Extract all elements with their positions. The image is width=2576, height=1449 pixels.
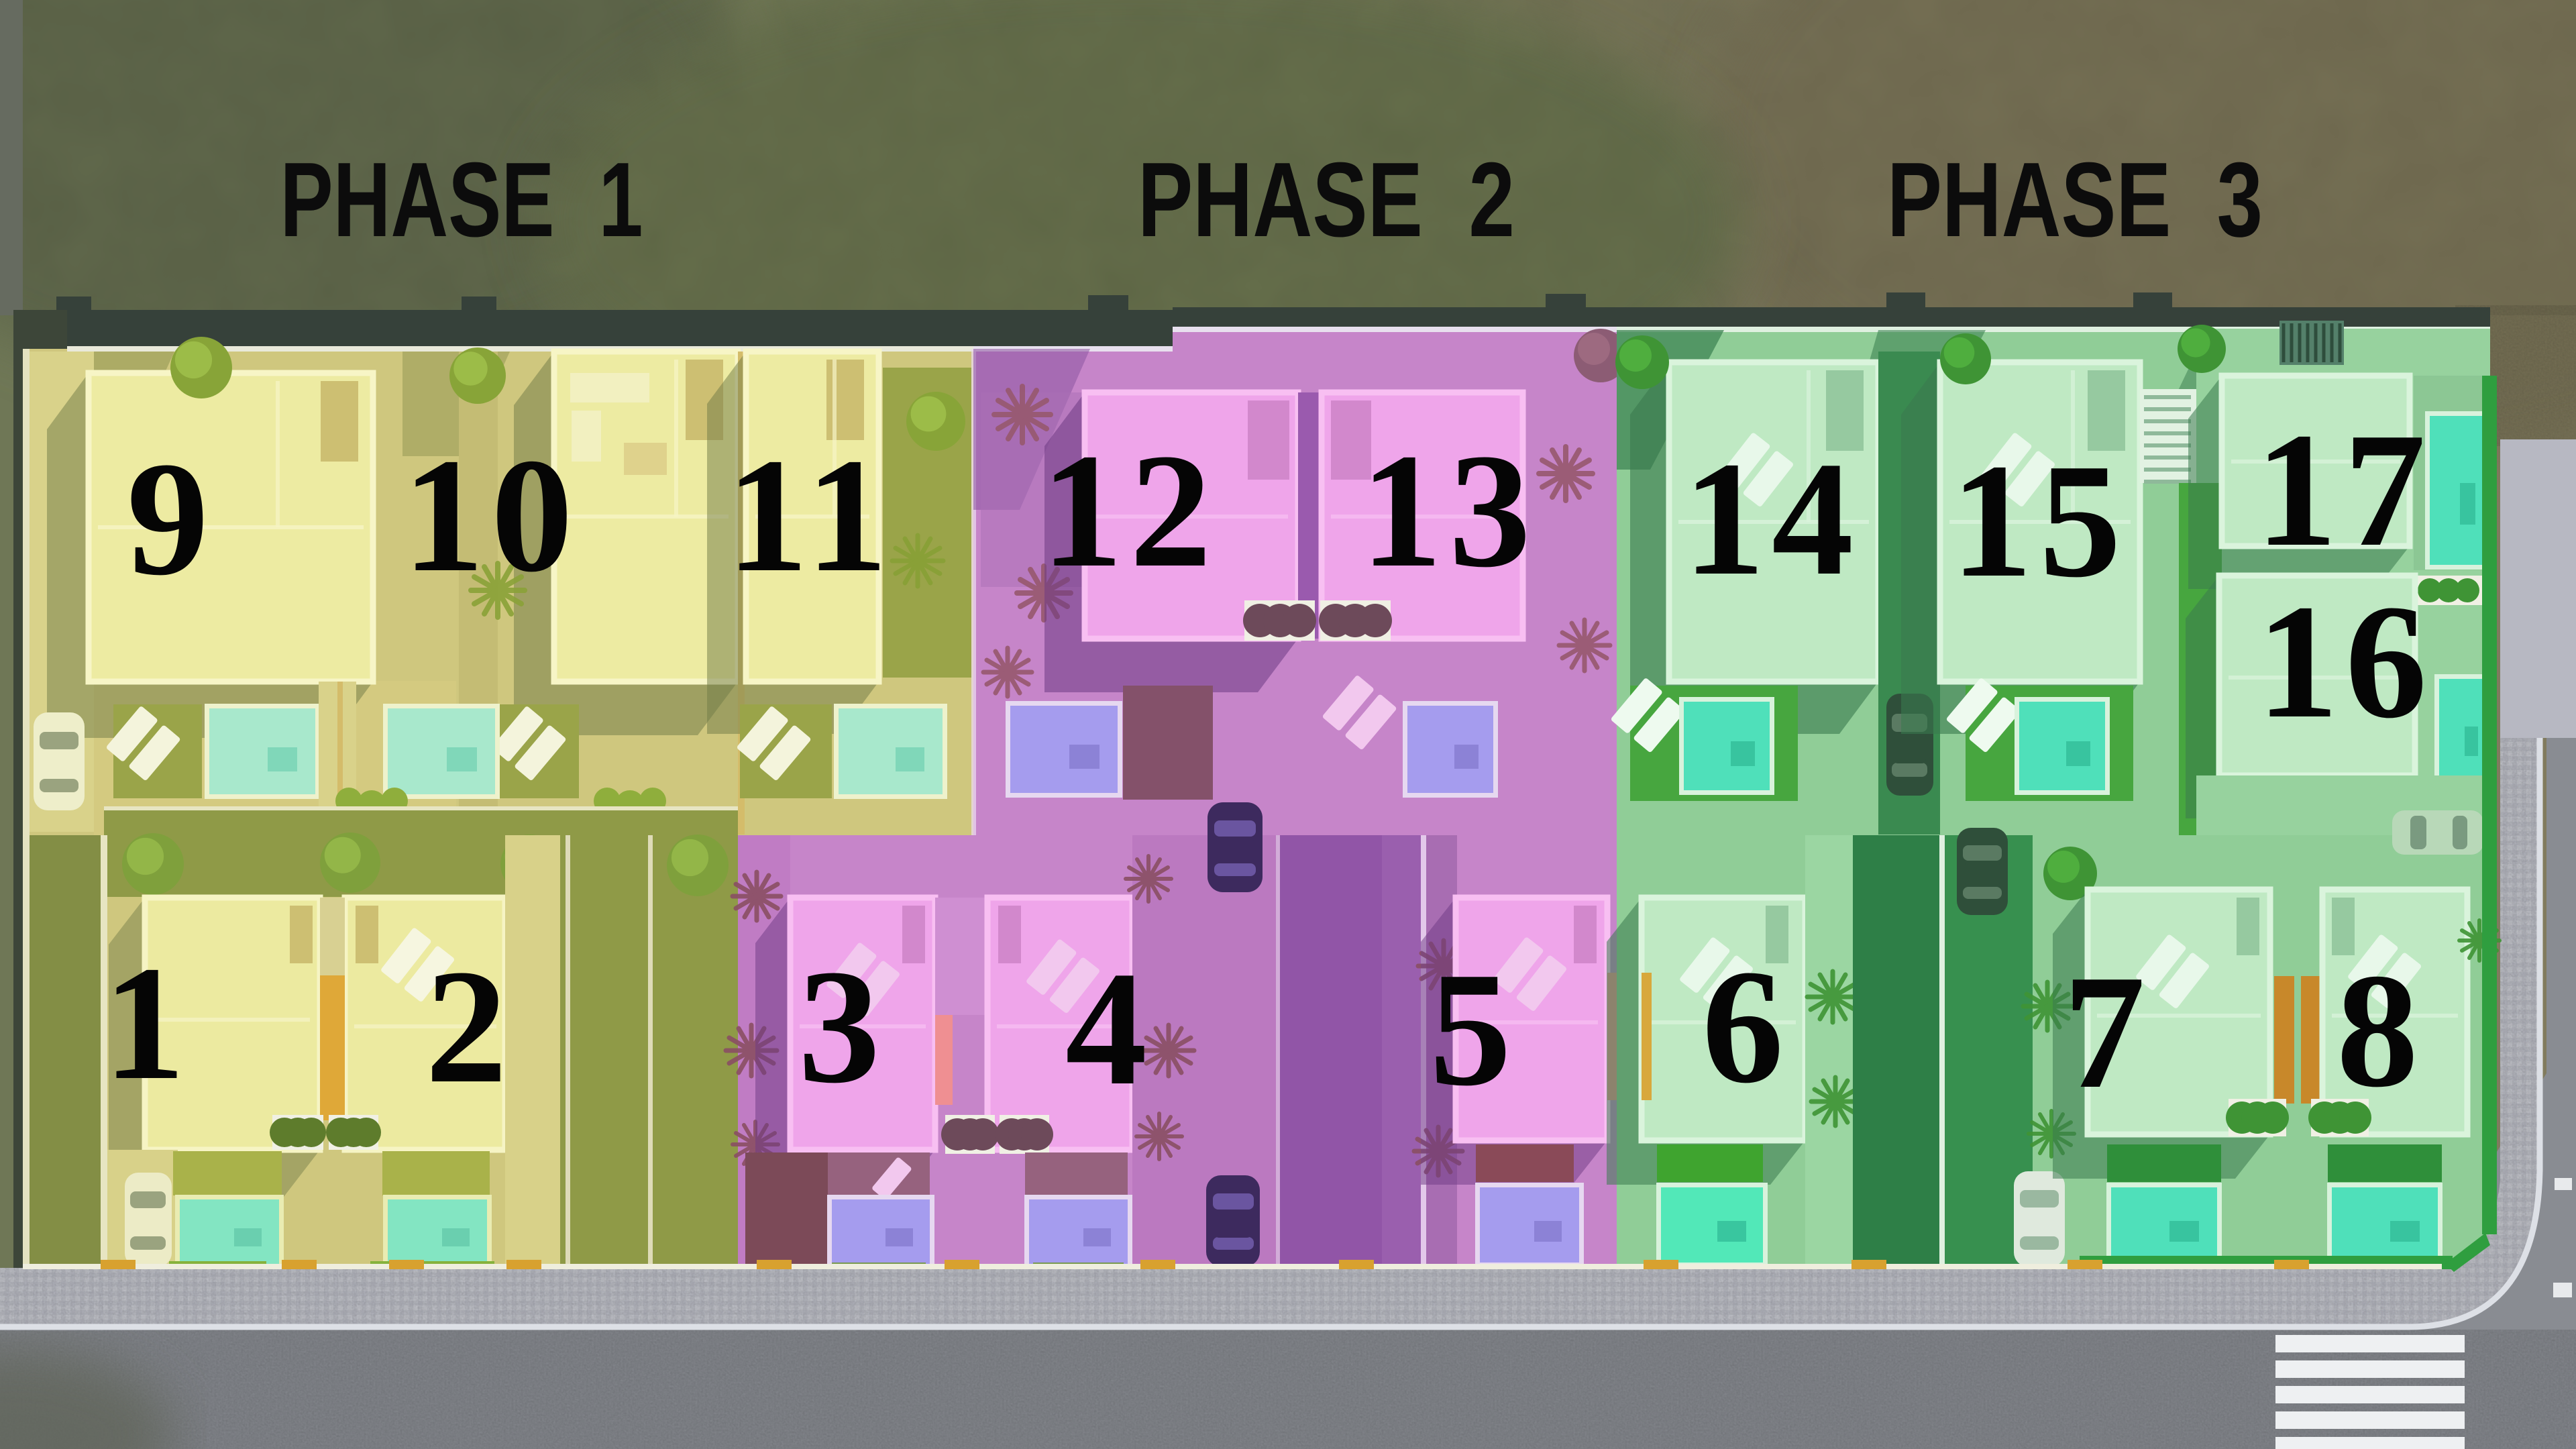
svg-text:12: 12 — [1041, 420, 1218, 601]
svg-text:16: 16 — [2257, 571, 2434, 752]
svg-text:14: 14 — [1683, 428, 1860, 609]
svg-text:6: 6 — [1702, 936, 1784, 1117]
svg-text:17: 17 — [2255, 399, 2432, 580]
svg-text:PHASE 2: PHASE 2 — [1138, 141, 1515, 259]
svg-text:15: 15 — [1951, 430, 2128, 611]
svg-text:PHASE 3: PHASE 3 — [1887, 141, 2263, 259]
svg-text:9: 9 — [127, 428, 209, 609]
svg-text:4: 4 — [1065, 938, 1147, 1119]
svg-text:7: 7 — [2063, 941, 2145, 1122]
svg-text:3: 3 — [798, 936, 880, 1117]
svg-text:8: 8 — [2337, 940, 2418, 1121]
svg-text:13: 13 — [1360, 420, 1538, 601]
svg-text:2: 2 — [425, 936, 507, 1117]
svg-text:5: 5 — [1430, 938, 1511, 1120]
svg-text:PHASE 1: PHASE 1 — [280, 141, 643, 259]
svg-text:1: 1 — [103, 932, 185, 1114]
svg-text:11: 11 — [727, 425, 895, 606]
svg-text:10: 10 — [402, 425, 580, 606]
